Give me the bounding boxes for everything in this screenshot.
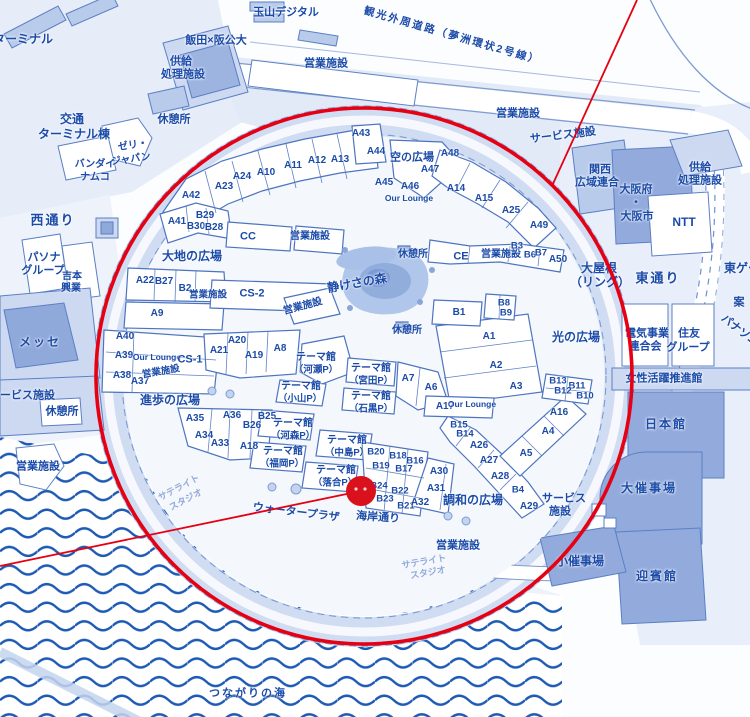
expo-site-map: ターミナル玉山デジタル観光外周道路（夢洲環状2号線）飯田×阪公大供給処理施設営業…	[0, 0, 750, 717]
base-map	[0, 0, 750, 717]
